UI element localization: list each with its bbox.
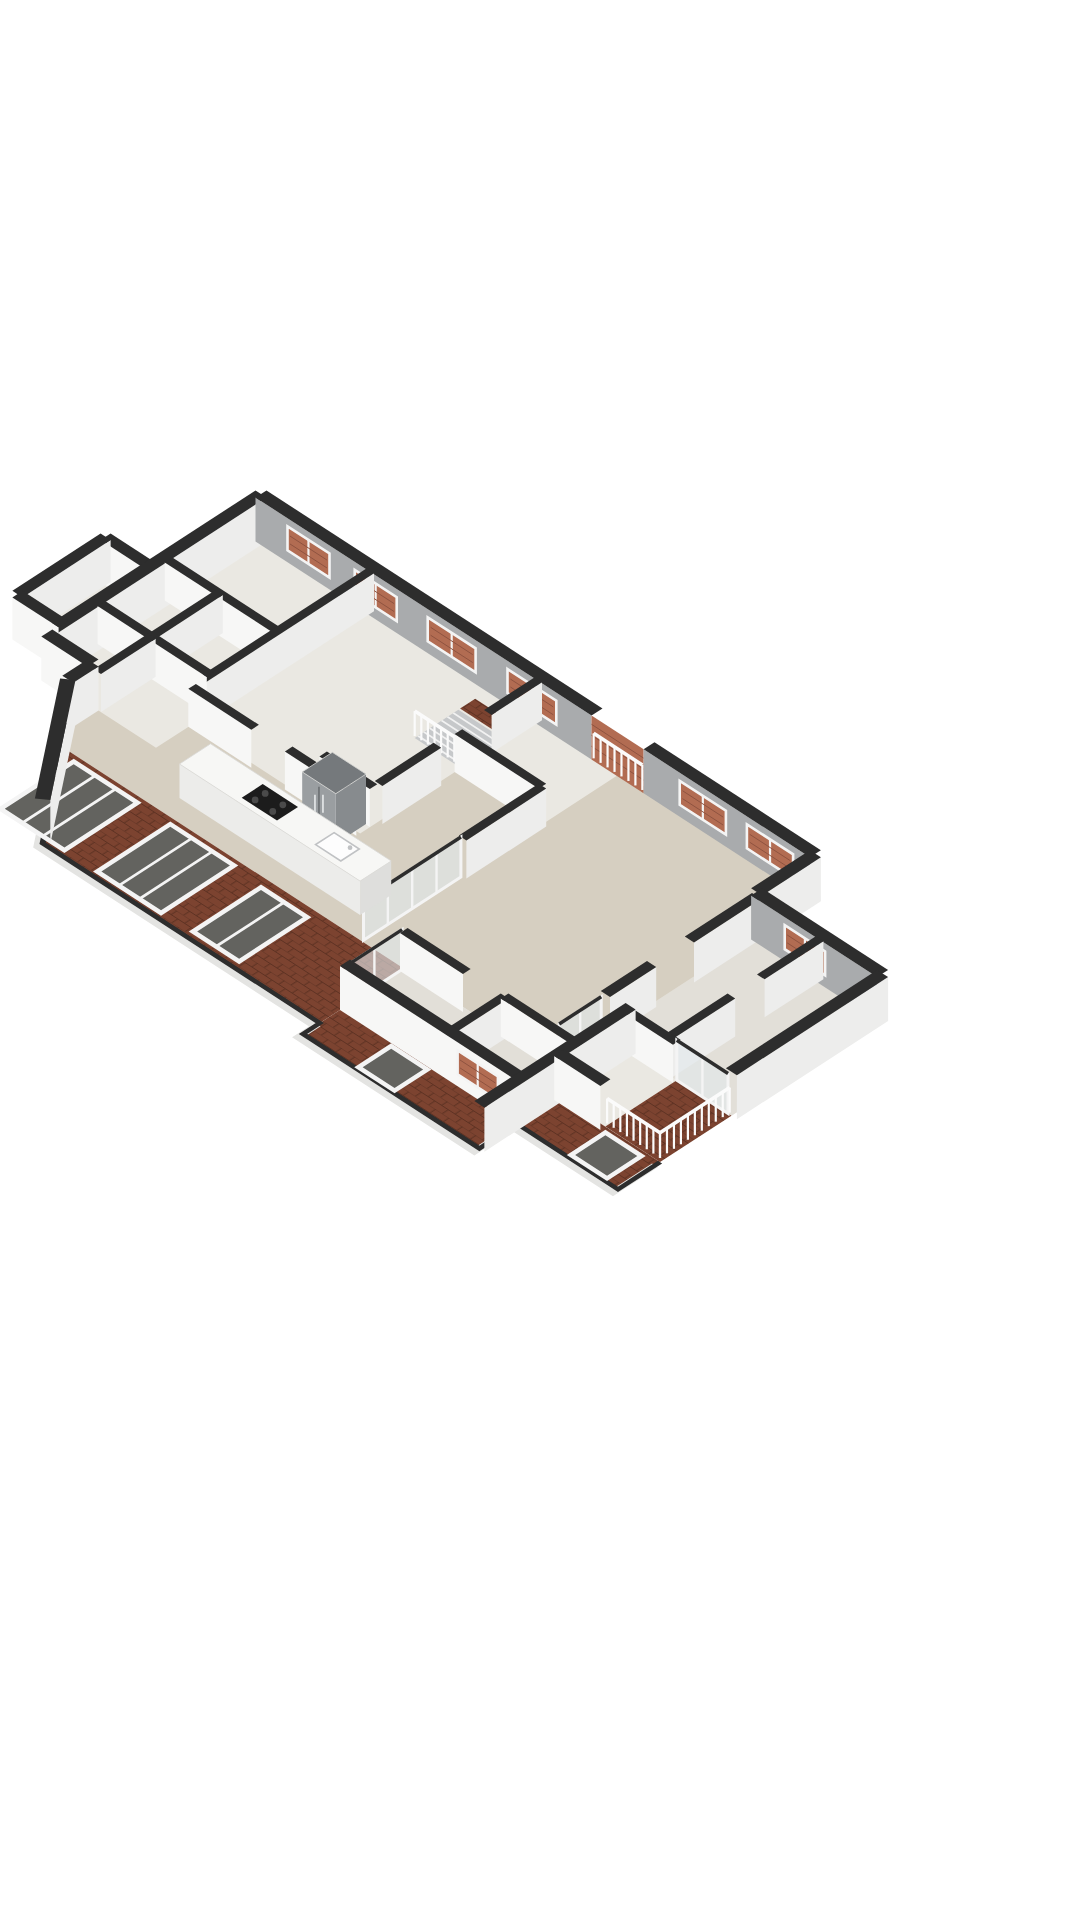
floorplan-figure: 3D floor plan render (isometric, no text… [0, 0, 1080, 1920]
page-background: 3D floor plan render (isometric, no text… [0, 0, 1080, 1920]
faucet [348, 845, 353, 850]
floorplan-3d-render [0, 0, 1080, 1920]
